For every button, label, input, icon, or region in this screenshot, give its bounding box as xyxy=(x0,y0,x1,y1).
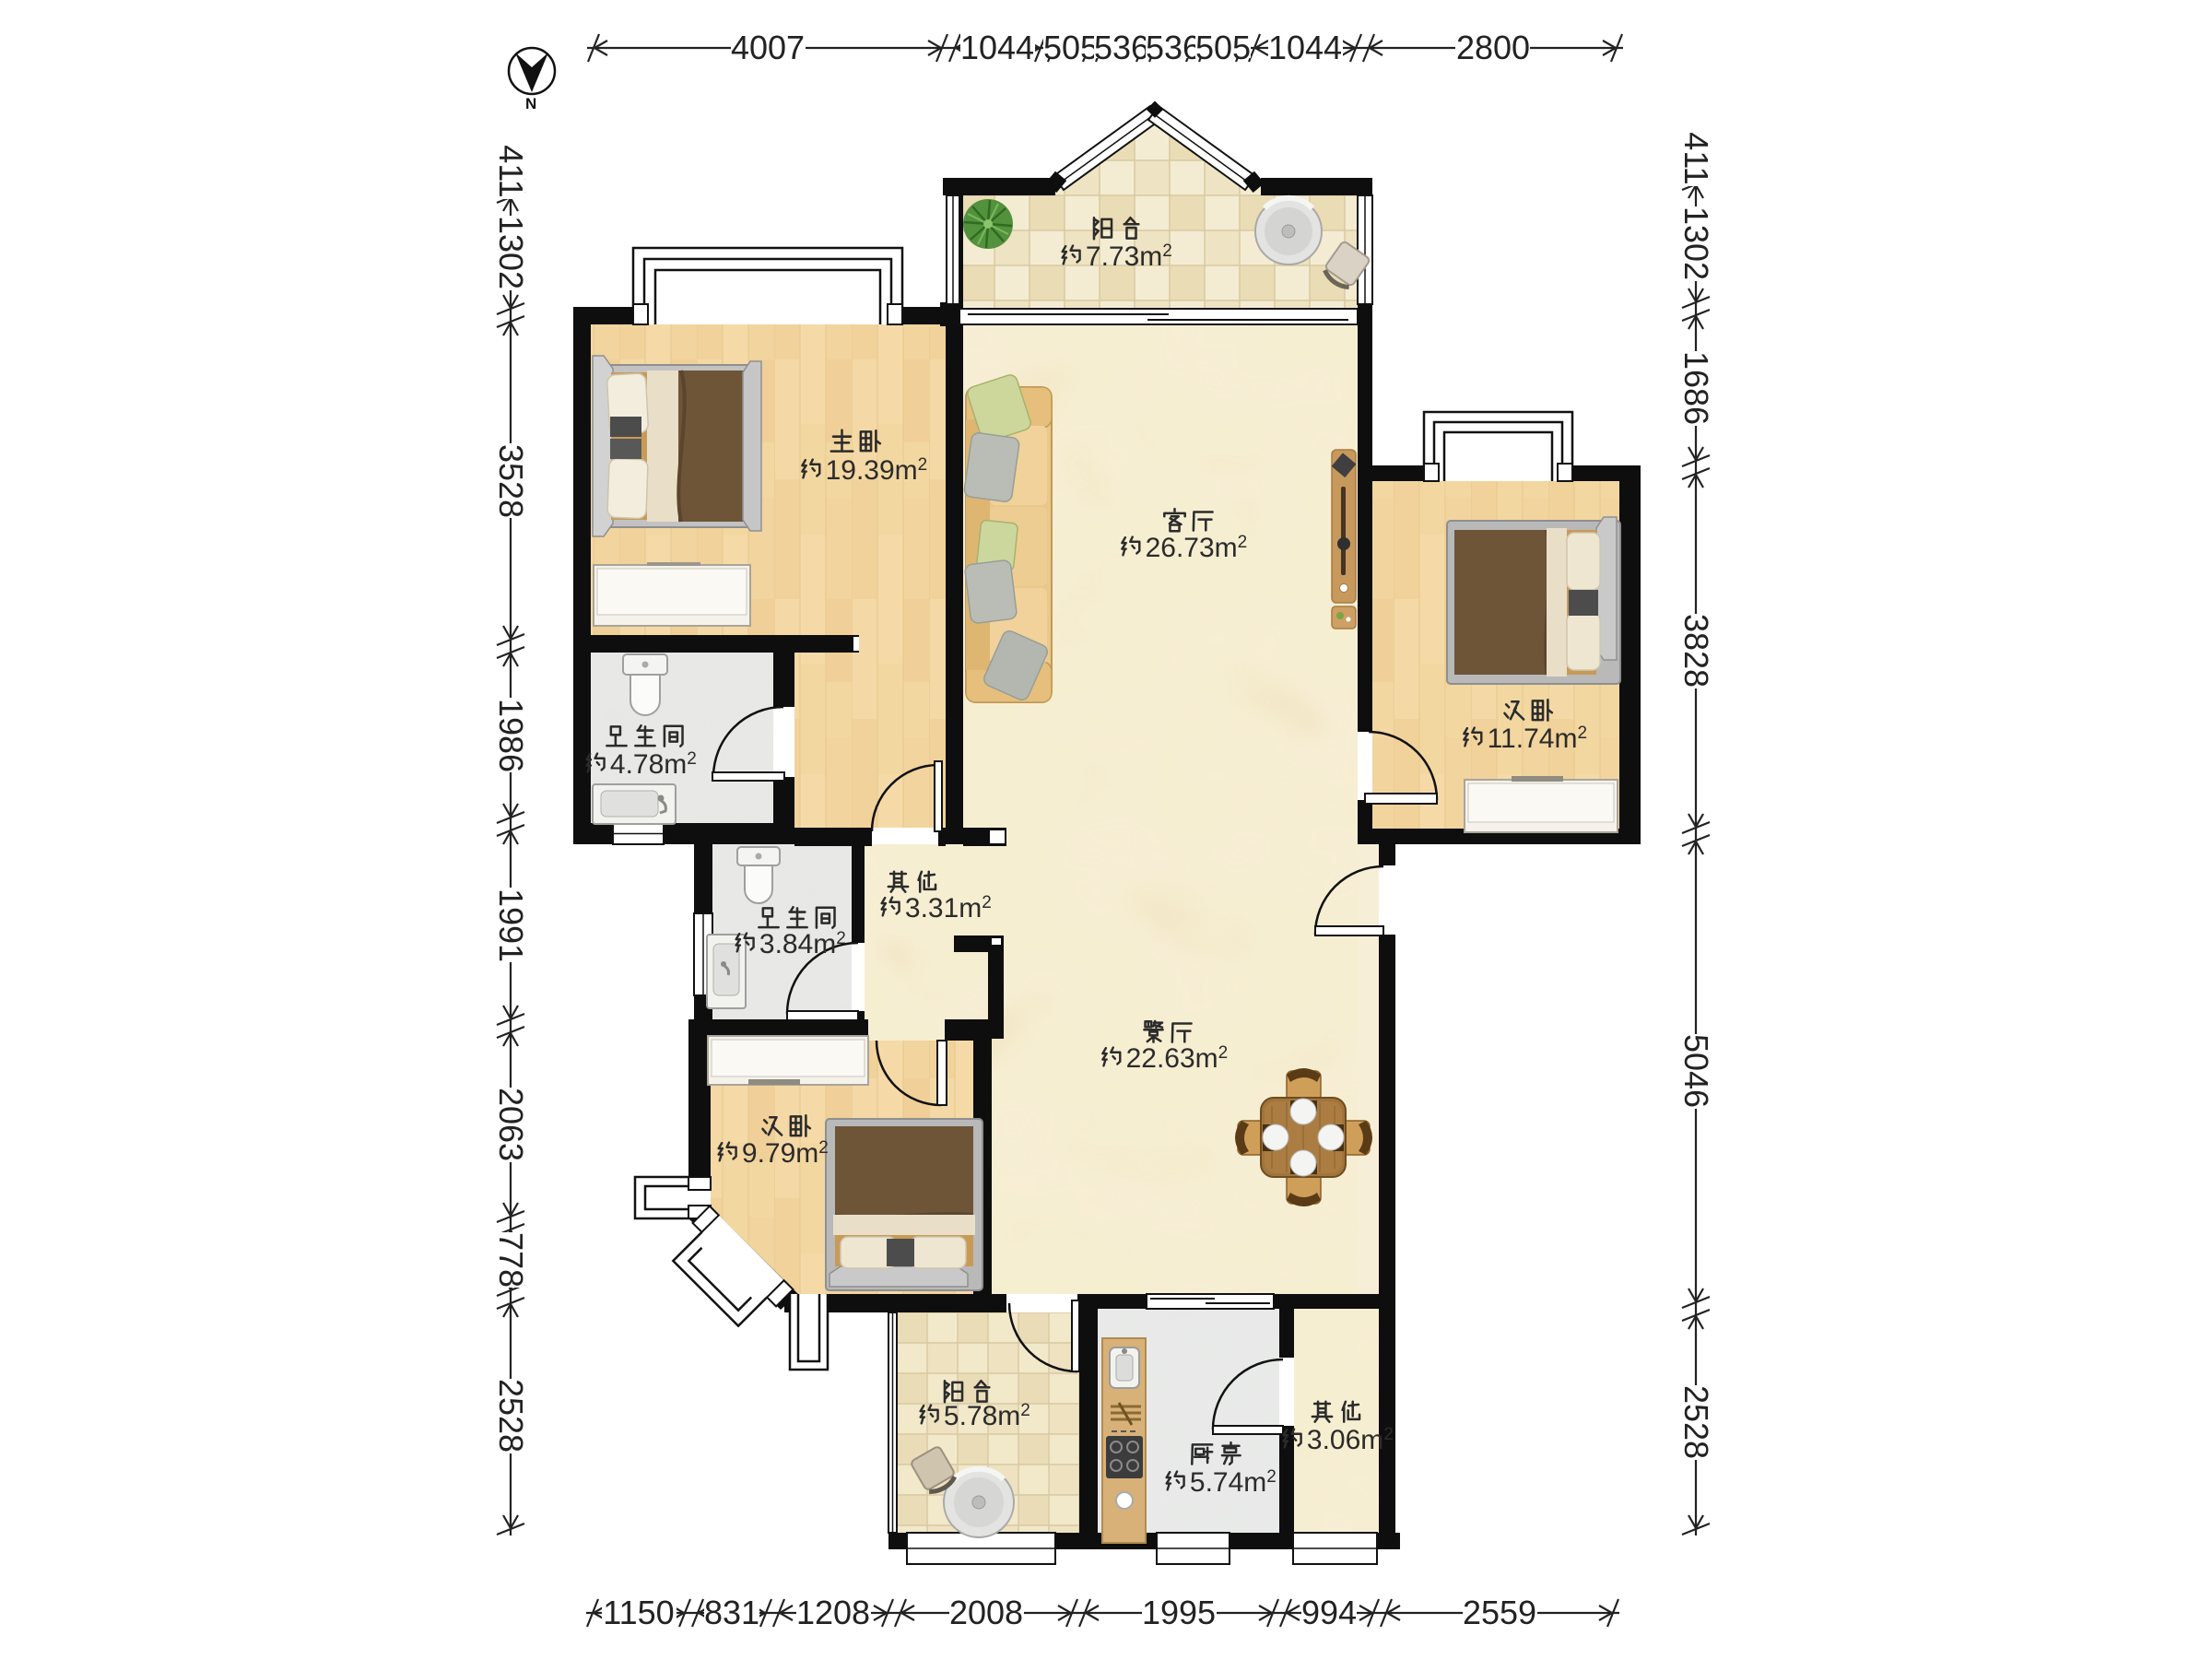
svg-text:411: 411 xyxy=(492,145,530,197)
svg-text:11.74m2: 11.74m2 xyxy=(1488,724,1587,754)
svg-text:505: 505 xyxy=(1043,29,1099,66)
svg-text:1044: 1044 xyxy=(960,29,1034,66)
svg-text:1208: 1208 xyxy=(796,1594,870,1631)
svg-text:3528: 3528 xyxy=(492,444,530,518)
svg-text:994: 994 xyxy=(1301,1594,1357,1631)
svg-text:3.06m2: 3.06m2 xyxy=(1307,1425,1394,1455)
svg-text:505: 505 xyxy=(1195,29,1251,66)
svg-text:3.84m2: 3.84m2 xyxy=(759,929,846,959)
svg-text:1991: 1991 xyxy=(492,888,530,962)
svg-text:1995: 1995 xyxy=(1142,1594,1216,1631)
svg-text:2063: 2063 xyxy=(492,1088,530,1161)
svg-text:2528: 2528 xyxy=(492,1379,530,1453)
svg-text:2008: 2008 xyxy=(949,1594,1023,1631)
svg-text:4007: 4007 xyxy=(731,29,805,66)
svg-text:536: 536 xyxy=(1094,29,1149,66)
svg-text:1150: 1150 xyxy=(603,1594,674,1631)
svg-text:3.31m2: 3.31m2 xyxy=(905,893,992,924)
svg-text:2559: 2559 xyxy=(1463,1594,1536,1631)
svg-text:5046: 5046 xyxy=(1677,1034,1715,1108)
svg-text:26.73m2: 26.73m2 xyxy=(1146,533,1248,563)
svg-text:22.63m2: 22.63m2 xyxy=(1126,1043,1229,1074)
svg-text:831: 831 xyxy=(704,1594,759,1631)
svg-text:N: N xyxy=(525,95,536,112)
svg-text:19.39m2: 19.39m2 xyxy=(826,455,928,486)
svg-text:2800: 2800 xyxy=(1456,29,1530,66)
svg-text:5.74m2: 5.74m2 xyxy=(1190,1467,1277,1498)
svg-text:411: 411 xyxy=(1677,132,1715,184)
svg-text:9.79m2: 9.79m2 xyxy=(742,1138,829,1169)
svg-text:7.73m2: 7.73m2 xyxy=(1086,241,1172,272)
svg-text:536: 536 xyxy=(1146,29,1201,66)
svg-text:5.78m2: 5.78m2 xyxy=(944,1401,1030,1431)
svg-text:1044: 1044 xyxy=(1268,29,1342,66)
svg-text:4.78m2: 4.78m2 xyxy=(610,749,697,780)
svg-text:1686: 1686 xyxy=(1677,351,1715,425)
svg-text:1302: 1302 xyxy=(492,216,530,289)
svg-text:1986: 1986 xyxy=(492,699,530,772)
svg-text:3828: 3828 xyxy=(1677,614,1715,688)
svg-text:2528: 2528 xyxy=(1677,1385,1715,1459)
svg-text:1302: 1302 xyxy=(1677,206,1715,280)
svg-text:778: 778 xyxy=(492,1232,530,1288)
